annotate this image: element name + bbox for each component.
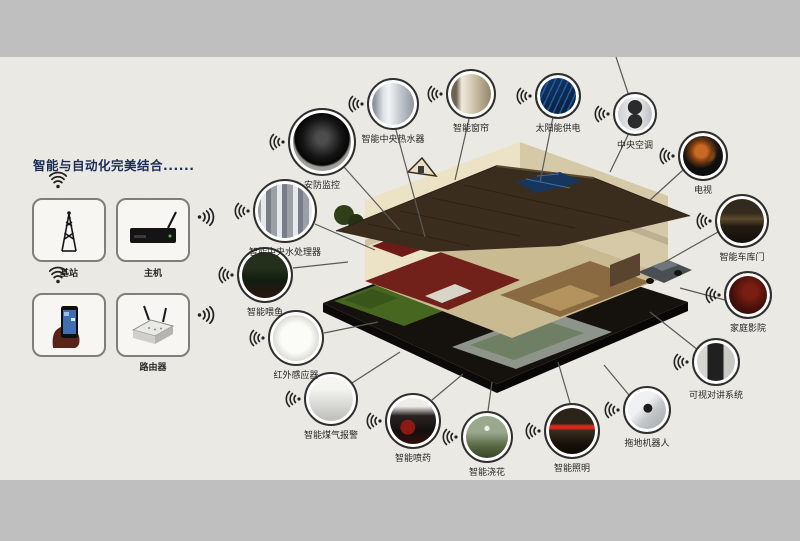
mopping-robot-photo [623, 386, 671, 434]
device-node-smart-lighting: 智能照明 [544, 403, 600, 459]
device-label: 智能喂鱼 [247, 305, 283, 318]
hub-label-router: 路由器 [139, 360, 166, 373]
device-label: 智能车库门 [719, 250, 764, 263]
wifi-waves-icon [194, 304, 216, 326]
hub-box-smartphone [32, 293, 106, 357]
device-node-smart-curtains: 智能窗帘 [446, 69, 496, 119]
ac-unit-photo [613, 92, 657, 136]
wifi-waves-icon [704, 285, 724, 305]
wifi-waves-icon [658, 146, 678, 166]
device-node-smart-spraying: 智能喷药 [385, 393, 441, 449]
device-label: 红外感应器 [273, 368, 318, 381]
device-node-garage-door: 智能车库门 [715, 194, 769, 248]
set-top-box-icon [126, 208, 180, 252]
wifi-waves-icon [248, 328, 268, 348]
device-label: 智能中央水处理器 [249, 245, 321, 258]
device-node-water-processor: 智能中央水处理器 [253, 179, 317, 243]
wifi-waves-icon [347, 94, 367, 114]
device-label: 智能窗帘 [453, 121, 489, 134]
intercom-photo [692, 338, 740, 386]
wifi-waves-icon [426, 84, 446, 104]
lighting-photo [544, 403, 600, 459]
home-theater-photo [724, 271, 772, 319]
smartphone-in-hand-icon [45, 302, 93, 348]
wifi-waves-icon [194, 206, 216, 228]
device-label: 智能煤气报警 [304, 428, 358, 441]
water-processor-photo [253, 179, 317, 243]
sprinkler-photo [461, 411, 513, 463]
device-label: 电视 [694, 183, 712, 196]
device-label: 家庭影院 [730, 321, 766, 334]
infrared-sensor-photo [268, 310, 324, 366]
wifi-waves-icon [515, 86, 535, 106]
device-node-infrared-sensor: 红外感应器 [268, 310, 324, 366]
device-label: 智能喷药 [395, 451, 431, 464]
hub-box-router [116, 293, 190, 357]
wifi-waves-icon [672, 352, 692, 372]
wifi-waves-icon [441, 427, 461, 447]
wifi-waves-icon [365, 411, 385, 431]
wifi-waves-icon [47, 170, 69, 192]
device-node-solar-power: 太阳能供电 [535, 73, 581, 119]
device-label: 智能中央热水器 [361, 132, 424, 145]
hub-box-host [116, 198, 190, 262]
device-node-tv: 电视 [678, 131, 728, 181]
solar-panel-photo [535, 73, 581, 119]
device-label: 可视对讲系统 [689, 388, 743, 401]
device-label: 中央空调 [617, 138, 653, 151]
wifi-waves-icon [47, 265, 69, 287]
tv-photo [678, 131, 728, 181]
curtains-photo [446, 69, 496, 119]
wifi-waves-icon [217, 265, 237, 285]
wifi-waves-icon [284, 389, 304, 409]
device-node-video-intercom: 可视对讲系统 [692, 338, 740, 386]
device-label: 拖地机器人 [624, 436, 669, 449]
poster-stage: 智能与自动化完美结合...... 基站 主机 [0, 0, 800, 541]
device-label: 智能照明 [554, 461, 590, 474]
wifi-waves-icon [593, 104, 613, 124]
device-label: 太阳能供电 [535, 121, 580, 134]
sprayer-boots-photo [385, 393, 441, 449]
water-heater-photo [367, 78, 419, 130]
wifi-waves-icon [695, 211, 715, 231]
signal-tower-icon [49, 207, 89, 253]
device-node-smart-watering: 智能浇花 [461, 411, 513, 463]
device-node-central-ac: 中央空调 [613, 92, 657, 136]
hub-label-host: 主机 [144, 266, 162, 279]
device-node-central-water-heater: 智能中央热水器 [367, 78, 419, 130]
wifi-waves-icon [603, 400, 623, 420]
device-node-mopping-robot: 拖地机器人 [623, 386, 671, 434]
wifi-waves-icon [268, 132, 288, 152]
device-node-home-theater: 家庭影院 [724, 271, 772, 319]
router-icon [127, 302, 179, 348]
garage-door-photo [715, 194, 769, 248]
wifi-waves-icon [524, 421, 544, 441]
hub-box-base-station [32, 198, 106, 262]
device-node-security-monitor: 安防监控 [288, 108, 356, 176]
device-label: 智能浇花 [469, 465, 505, 478]
wifi-waves-icon [233, 201, 253, 221]
dome-camera-photo [288, 108, 356, 176]
